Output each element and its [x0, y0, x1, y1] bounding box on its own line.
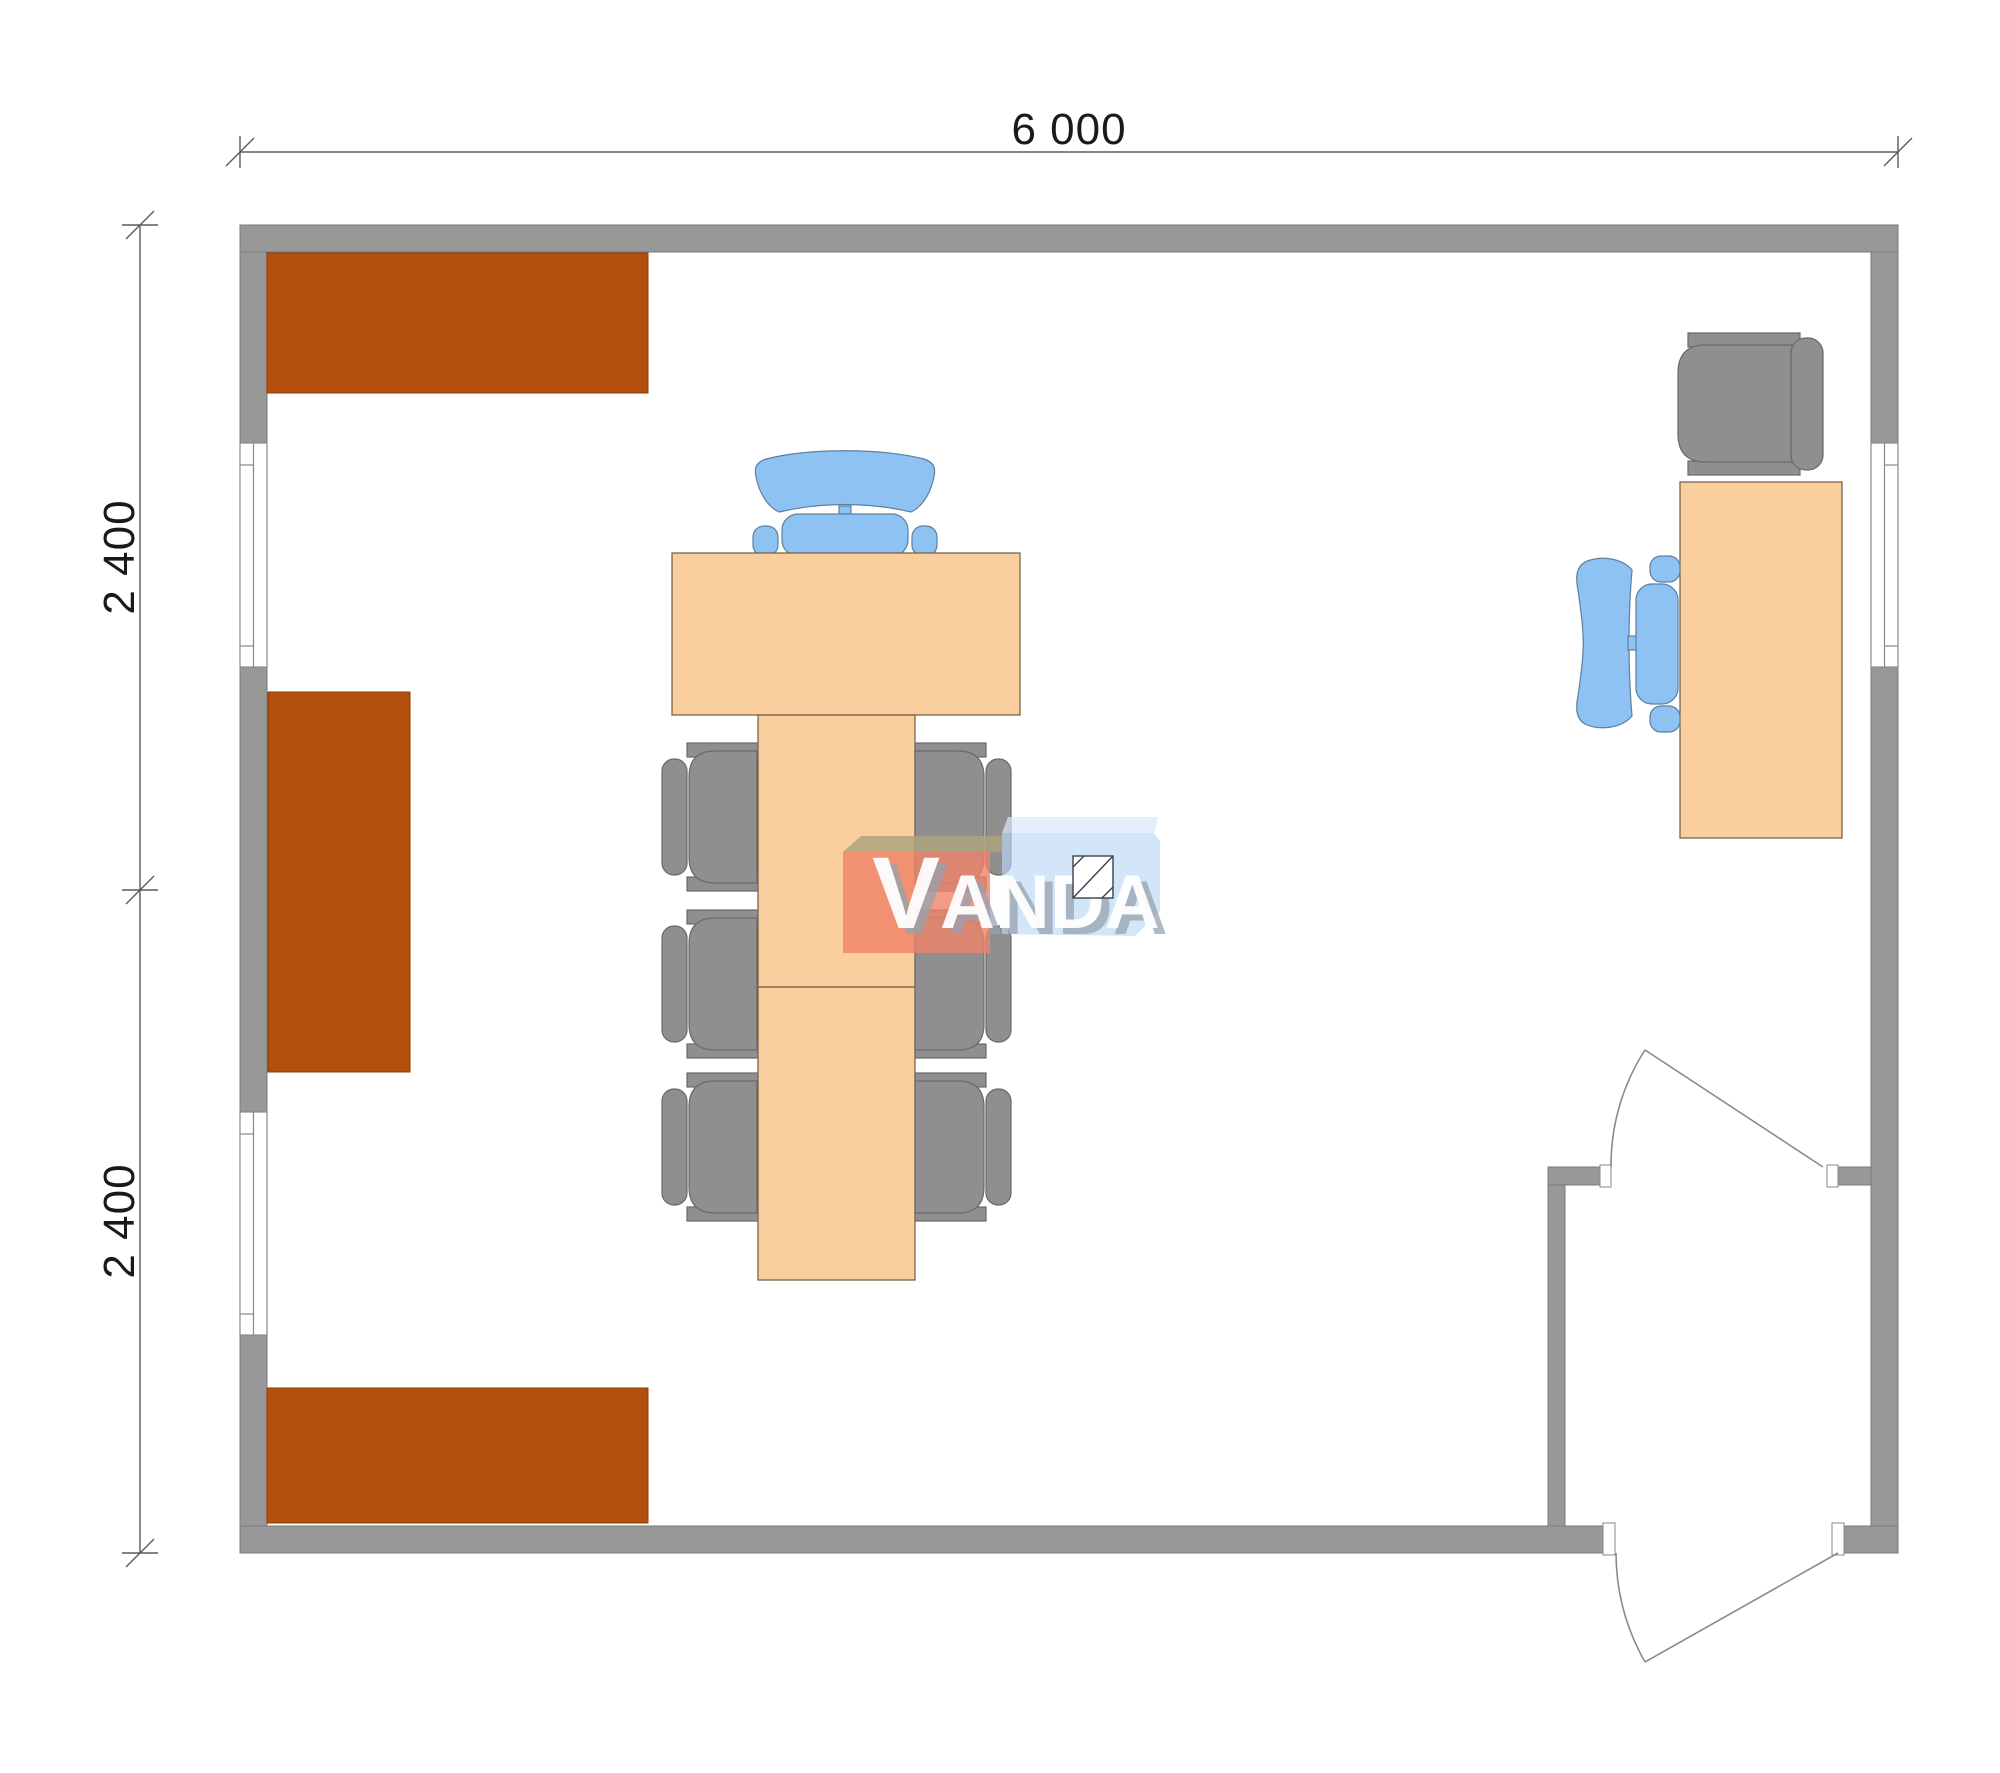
chair-backrest — [986, 1089, 1011, 1205]
executive-chair-head — [753, 451, 937, 556]
office-chair-blue — [1577, 556, 1680, 732]
cabinet-bottom-left — [267, 1388, 648, 1523]
side-chair-left-3 — [662, 1073, 758, 1221]
chair-backrest — [1791, 338, 1823, 470]
dimension-label-height-top: 2 400 — [95, 499, 144, 614]
chair-backrest — [662, 759, 687, 875]
side-chair-left-2 — [662, 910, 758, 1058]
window-left-lower — [240, 1112, 267, 1335]
conference-desk — [672, 553, 1020, 715]
wall-bottom-left — [240, 1526, 1603, 1553]
chair-armrest — [1688, 461, 1800, 475]
cabinets — [267, 253, 648, 1523]
entrance-door — [1603, 1523, 1844, 1662]
logo-ribbon-top-face — [1002, 817, 1158, 833]
dimension-label-height-bottom: 2 400 — [95, 1163, 144, 1278]
wall-right-upper — [1871, 252, 1898, 443]
wall-left-upper — [240, 252, 267, 443]
window-left-upper — [240, 443, 267, 667]
chair-seat — [915, 1081, 984, 1213]
wall-left-lower — [240, 1335, 267, 1526]
dimension-label-width: 6 000 — [1011, 105, 1126, 154]
wall-right-lower — [1871, 667, 1898, 1526]
wall-bottom-right — [1844, 1526, 1898, 1553]
partition-wall-vertical — [1548, 1185, 1565, 1526]
window-right — [1871, 443, 1898, 667]
chair-armrest — [1650, 706, 1680, 732]
door-leaf — [1645, 1050, 1823, 1167]
cabinet-top-left — [267, 253, 648, 393]
partition-wall-horizontal-right — [1838, 1167, 1871, 1185]
vanda-watermark: VANDA VANDA — [843, 817, 1168, 956]
chair-seat — [782, 514, 908, 556]
conference-table-lower — [758, 987, 915, 1280]
chair-armrest — [1650, 556, 1680, 582]
chair-seat — [689, 918, 757, 1050]
chair-backrest — [1577, 558, 1632, 727]
floor-plan-canvas: VANDA VANDA 6 000 2 400 2 400 — [0, 0, 2000, 1773]
door-swing-arc — [1611, 1050, 1645, 1167]
chair-armrest — [912, 526, 937, 556]
chair-backrest — [755, 451, 934, 512]
door-jamb — [1600, 1165, 1611, 1187]
lounge-chair — [1678, 333, 1823, 475]
chair-backrest — [662, 926, 687, 1042]
wall-top — [240, 225, 1898, 252]
side-chair-right-3 — [915, 1073, 1011, 1221]
interior-door — [1600, 1050, 1838, 1187]
door-jamb — [1603, 1523, 1615, 1555]
partition-wall-horizontal-left — [1548, 1167, 1600, 1185]
chair-seat — [1636, 584, 1678, 704]
door-swing-arc — [1616, 1553, 1645, 1662]
wall-left-middle — [240, 667, 267, 1112]
door-jamb — [1832, 1523, 1844, 1555]
work-area — [1577, 333, 1842, 838]
chair-seat — [1678, 345, 1792, 462]
chair-armrest — [753, 526, 778, 556]
dimension-top: 6 000 — [226, 105, 1912, 168]
work-desk — [1680, 482, 1842, 838]
door-leaf — [1645, 1553, 1838, 1662]
dimension-left: 2 400 2 400 — [95, 211, 158, 1567]
doors — [1600, 1050, 1844, 1662]
chair-seat — [689, 751, 757, 883]
cabinet-left-middle — [268, 692, 410, 1072]
chair-backrest — [662, 1089, 687, 1205]
chair-seat — [689, 1081, 757, 1213]
ceiling-fixture-symbol — [1073, 856, 1113, 898]
door-jamb — [1827, 1165, 1838, 1187]
side-chair-left-1 — [662, 743, 758, 891]
